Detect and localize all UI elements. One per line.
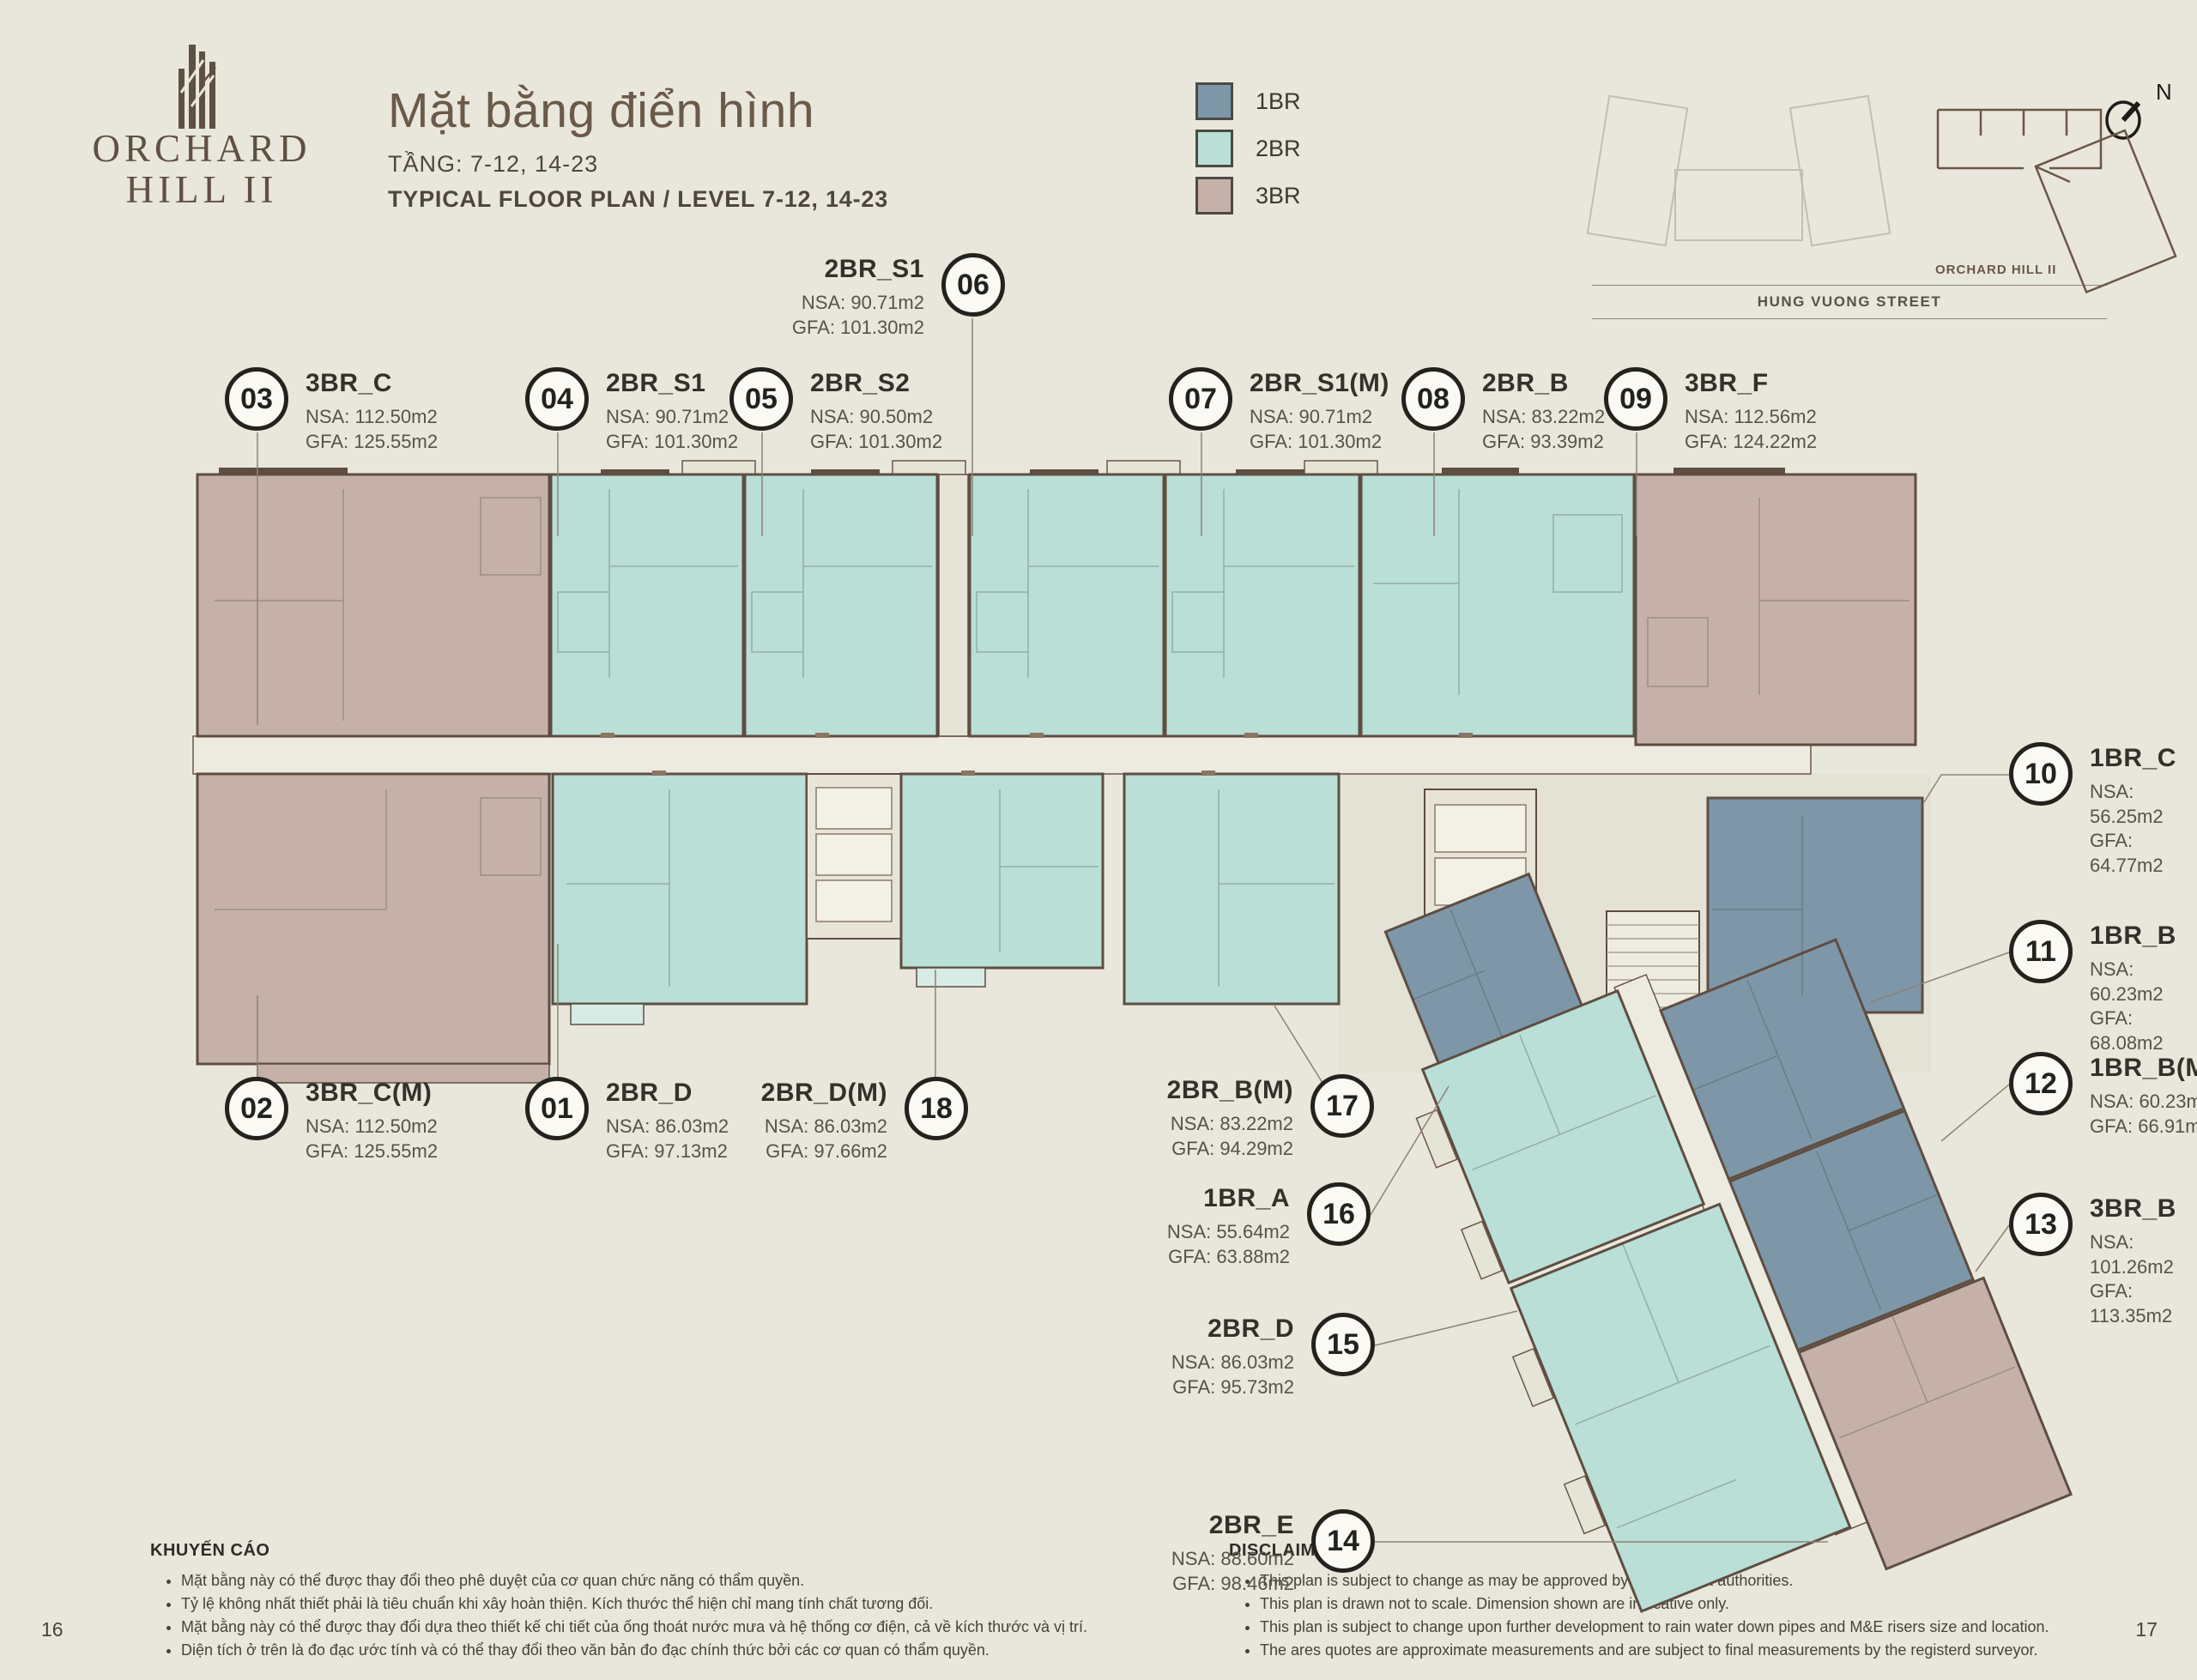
unit-gfa: GFA: 101.30m2	[792, 316, 924, 341]
unit-02-3br-cm	[197, 774, 549, 1064]
unit-type-label: 2BR_B	[1482, 369, 1605, 398]
unit-nsa: NSA: 55.64m2	[1167, 1220, 1290, 1245]
callout-12: 12 1BR_B(M) NSA: 60.23m2 GFA: 66.91m2	[2009, 1052, 2197, 1139]
callout-18: 18 2BR_D(M) NSA: 86.03m2 GFA: 97.66m2	[761, 1077, 968, 1163]
unit-type-label: 1BR_B(M)	[2090, 1054, 2197, 1083]
unit-number-badge: 10	[2009, 742, 2073, 806]
unit-number-badge: 12	[2009, 1052, 2073, 1115]
unit-nsa: NSA: 86.03m2	[1171, 1351, 1294, 1375]
unit-nsa: NSA: 112.50m2	[306, 1115, 438, 1139]
unit-08-2br-b	[1361, 474, 1634, 736]
context-key-plan	[1588, 96, 1890, 245]
unit-type-label: 2BR_S1	[792, 255, 924, 284]
unit-number-badge: 06	[941, 253, 1005, 317]
unit-18-balcony	[917, 968, 985, 987]
unit-07-2br-s1m	[1165, 474, 1359, 736]
callout-04: 04 2BR_S1 NSA: 90.71m2 GFA: 101.30m2	[525, 367, 738, 454]
unit-type-label: 1BR_B	[2090, 922, 2197, 951]
unit-nsa: NSA: 90.71m2	[792, 291, 924, 316]
unit-01-2br-d	[553, 774, 807, 1004]
unit-04-2br-s1	[551, 474, 743, 736]
callout-17: 17 2BR_B(M) NSA: 83.22m2 GFA: 94.29m2	[1167, 1074, 1374, 1161]
unit-gfa: GFA: 124.22m2	[1685, 430, 1817, 455]
unit-number-badge: 18	[905, 1077, 968, 1140]
unit-gfa: GFA: 101.30m2	[810, 430, 942, 455]
unit-gfa: GFA: 95.73m2	[1171, 1375, 1294, 1400]
orchard-hill-key-plan	[1938, 110, 2176, 292]
unit-nsa: NSA: 60.23m2	[2090, 958, 2197, 1006]
unit-nsa: NSA: 90.71m2	[1250, 405, 1389, 430]
unit-number-badge: 08	[1401, 367, 1465, 431]
unit-gfa: GFA: 97.66m2	[761, 1139, 887, 1164]
unit-gfa: GFA: 64.77m2	[2090, 829, 2197, 878]
unit-gfa: GFA: 101.30m2	[1250, 430, 1389, 455]
unit-type-label: 2BR_E	[1171, 1511, 1294, 1540]
unit-number-badge: 13	[2009, 1193, 2073, 1256]
callout-03: 03 3BR_C NSA: 112.50m2 GFA: 125.55m2	[225, 367, 438, 454]
callout-07: 07 2BR_S1(M) NSA: 90.71m2 GFA: 101.30m2	[1169, 367, 1389, 454]
callout-05: 05 2BR_S2 NSA: 90.50m2 GFA: 101.30m2	[729, 367, 942, 454]
unit-type-label: 2BR_S1	[606, 369, 738, 398]
unit-gfa: GFA: 101.30m2	[606, 430, 738, 455]
callout-13: 13 3BR_B NSA: 101.26m2 GFA: 113.35m2	[2009, 1193, 2197, 1328]
unit-type-label: 2BR_B(M)	[1167, 1076, 1293, 1105]
unit-number-badge: 09	[1604, 367, 1667, 431]
unit-number-badge: 15	[1311, 1313, 1375, 1376]
unit-03-3br-c	[197, 474, 549, 736]
unit-type-label: 1BR_C	[2090, 744, 2197, 773]
unit-number-badge: 02	[225, 1077, 288, 1140]
unit-type-label: 2BR_S2	[810, 369, 942, 398]
unit-nsa: NSA: 90.50m2	[810, 405, 942, 430]
unit-number-badge: 17	[1310, 1074, 1374, 1138]
callout-09: 09 3BR_F NSA: 112.56m2 GFA: 124.22m2	[1604, 367, 1817, 454]
unit-nsa: NSA: 56.25m2	[2090, 780, 2197, 829]
unit-nsa: NSA: 86.03m2	[606, 1115, 729, 1139]
unit-number-badge: 03	[225, 367, 288, 431]
unit-gfa: GFA: 93.39m2	[1482, 430, 1605, 455]
unit-number-badge: 16	[1307, 1182, 1371, 1246]
unit-gfa: GFA: 66.91m2	[2090, 1115, 2197, 1139]
unit-nsa: NSA: 112.50m2	[306, 405, 438, 430]
unit-gfa: GFA: 125.55m2	[306, 1139, 438, 1164]
unit-type-label: 3BR_C	[306, 369, 438, 398]
unit-type-label: 3BR_C(M)	[306, 1079, 438, 1108]
unit-06-2br-s1	[970, 474, 1164, 736]
unit-type-label: 2BR_S1(M)	[1250, 369, 1389, 398]
unit-nsa: NSA: 112.56m2	[1685, 405, 1817, 430]
unit-type-label: 3BR_F	[1685, 369, 1817, 398]
callout-01: 01 2BR_D NSA: 86.03m2 GFA: 97.13m2	[525, 1077, 729, 1163]
callout-16: 16 1BR_A NSA: 55.64m2 GFA: 63.88m2	[1167, 1182, 1371, 1269]
unit-nsa: NSA: 86.03m2	[761, 1115, 887, 1139]
unit-type-label: 2BR_D	[1171, 1314, 1294, 1344]
callout-10: 10 1BR_C NSA: 56.25m2 GFA: 64.77m2	[2009, 742, 2197, 878]
floor-plan-page: ORCHARD HILL II Mặt bằng điển hình TẦNG:…	[0, 0, 2197, 1680]
unit-nsa: NSA: 90.71m2	[606, 405, 738, 430]
floor-plan-drawing	[0, 0, 2197, 1680]
unit-nsa: NSA: 88.60m2	[1171, 1547, 1294, 1572]
unit-number-badge: 01	[525, 1077, 589, 1140]
shaft	[939, 474, 968, 736]
unit-nsa: NSA: 83.22m2	[1482, 405, 1605, 430]
unit-nsa: NSA: 60.23m2	[2090, 1090, 2197, 1115]
unit-number-badge: 11	[2009, 920, 2073, 983]
elevator-boxes	[816, 788, 892, 922]
unit-05-2br-s2	[745, 474, 937, 736]
unit-nsa: NSA: 101.26m2	[2090, 1230, 2197, 1279]
unit-type-label: 2BR_D(M)	[761, 1079, 887, 1108]
unit-gfa: GFA: 97.13m2	[606, 1139, 729, 1164]
unit-gfa: GFA: 68.08m2	[2090, 1006, 2197, 1055]
corridor	[193, 736, 1811, 774]
callout-14: 14 2BR_E NSA: 88.60m2 GFA: 98.46m2	[1171, 1509, 1375, 1596]
unit-01-balcony	[571, 1004, 644, 1024]
unit-number-badge: 07	[1169, 367, 1232, 431]
unit-number-badge: 05	[729, 367, 793, 431]
callout-06: 06 2BR_S1 NSA: 90.71m2 GFA: 101.30m2	[792, 253, 1005, 340]
unit-number-badge: 04	[525, 367, 589, 431]
unit-17-2br-bm	[1124, 774, 1339, 1004]
unit-gfa: GFA: 113.35m2	[2090, 1279, 2197, 1328]
unit-gfa: GFA: 98.46m2	[1171, 1572, 1294, 1597]
unit-type-label: 2BR_D	[606, 1079, 729, 1108]
unit-nsa: NSA: 83.22m2	[1167, 1112, 1293, 1137]
unit-09-3br-f	[1636, 474, 1916, 745]
unit-gfa: GFA: 63.88m2	[1167, 1245, 1290, 1270]
unit-type-label: 3BR_B	[2090, 1194, 2197, 1224]
callout-15: 15 2BR_D NSA: 86.03m2 GFA: 95.73m2	[1171, 1313, 1375, 1399]
unit-gfa: GFA: 94.29m2	[1167, 1137, 1293, 1162]
callout-08: 08 2BR_B NSA: 83.22m2 GFA: 93.39m2	[1401, 367, 1605, 454]
callout-02: 02 3BR_C(M) NSA: 112.50m2 GFA: 125.55m2	[225, 1077, 438, 1163]
callout-11: 11 1BR_B NSA: 60.23m2 GFA: 68.08m2	[2009, 920, 2197, 1055]
unit-gfa: GFA: 125.55m2	[306, 430, 438, 455]
unit-18-2br-dm	[901, 774, 1103, 968]
unit-number-badge: 14	[1311, 1509, 1375, 1573]
unit-type-label: 1BR_A	[1167, 1184, 1290, 1213]
